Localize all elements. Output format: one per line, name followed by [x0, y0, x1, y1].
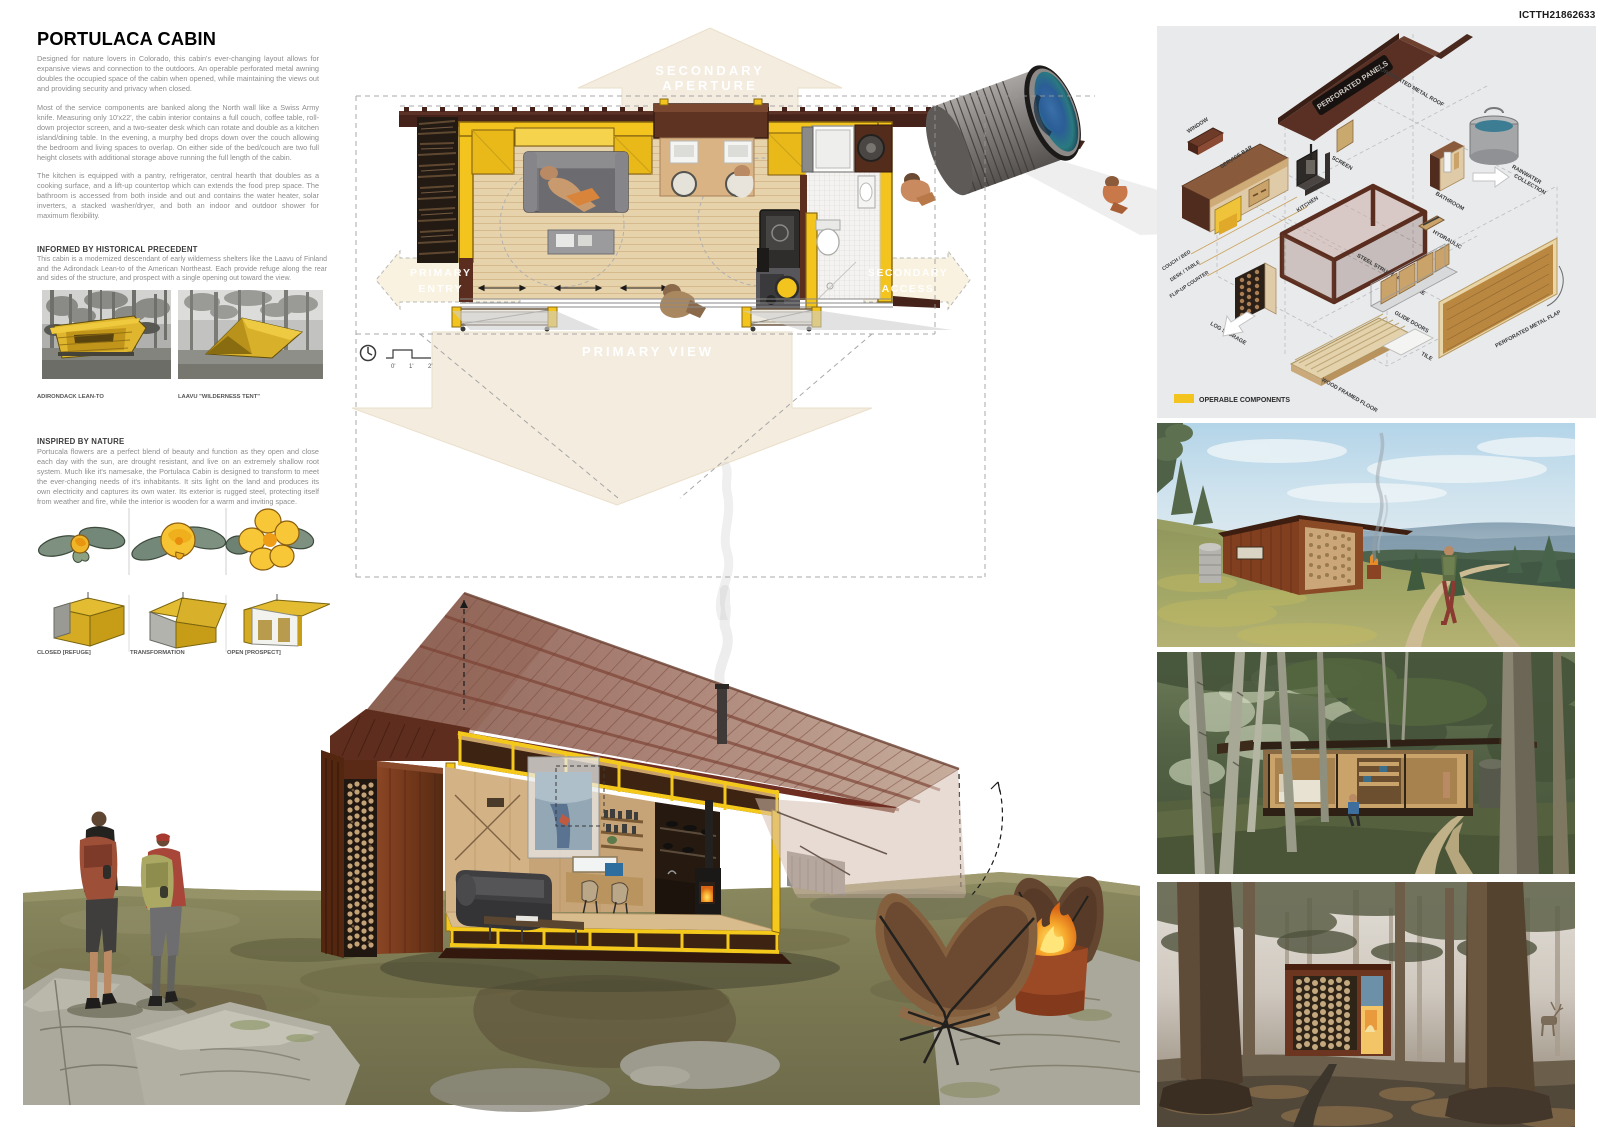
svg-text:2': 2' — [428, 364, 432, 370]
svg-text:OPERABLE COMPONENTS: OPERABLE COMPONENTS — [1199, 397, 1290, 404]
svg-text:0': 0' — [391, 364, 395, 370]
svg-text:ACCESS: ACCESS — [882, 283, 935, 295]
svg-text:SECONDARY: SECONDARY — [655, 63, 765, 78]
svg-text:APERTURE: APERTURE — [662, 78, 758, 93]
svg-text:PRIMARY VIEW: PRIMARY VIEW — [582, 344, 714, 359]
svg-text:ENTRY: ENTRY — [418, 283, 463, 295]
svg-text:1': 1' — [409, 364, 413, 370]
svg-text:PRIMARY: PRIMARY — [410, 267, 472, 279]
svg-text:SECONDARY: SECONDARY — [868, 267, 948, 279]
